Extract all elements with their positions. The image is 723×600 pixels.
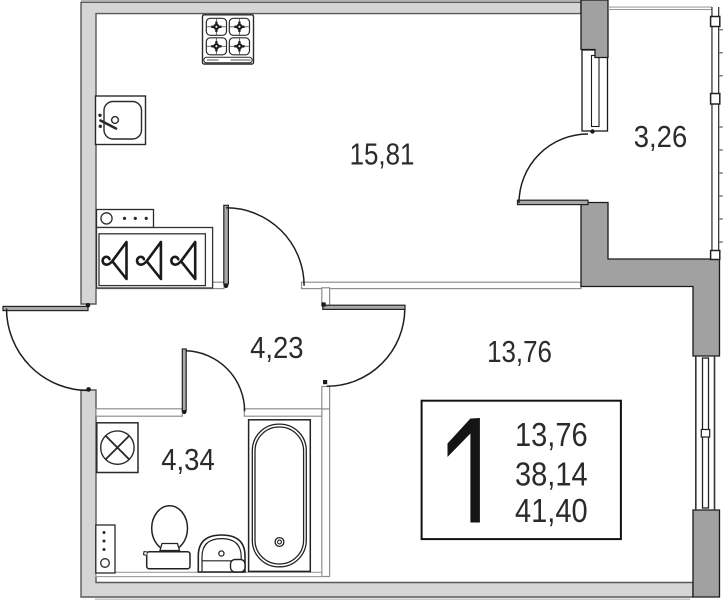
svg-text:13,76: 13,76 [487, 334, 552, 368]
svg-text:4,34: 4,34 [161, 444, 214, 478]
svg-text:15,81: 15,81 [350, 136, 415, 170]
svg-text:4,23: 4,23 [250, 332, 303, 366]
svg-text:3,26: 3,26 [634, 121, 687, 155]
svg-text:41,40: 41,40 [515, 492, 588, 529]
svg-text:13,76: 13,76 [515, 416, 588, 453]
svg-text:38,14: 38,14 [515, 456, 588, 493]
